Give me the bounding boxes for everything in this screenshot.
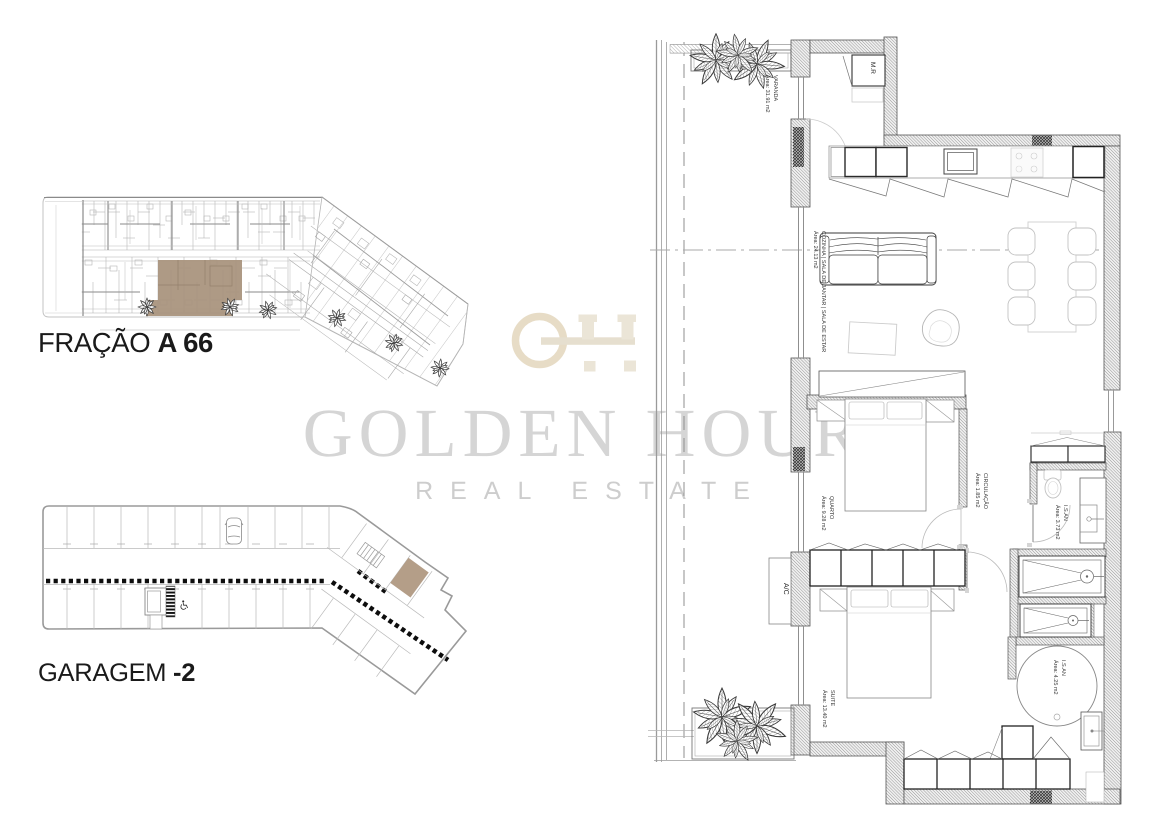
svg-text:GARAGEM -2: GARAGEM -2	[38, 659, 195, 687]
svg-text:FRAÇÃO A 66: FRAÇÃO A 66	[38, 327, 213, 358]
svg-text:SUITEÁrea: 13.40 m2: SUITEÁrea: 13.40 m2	[821, 690, 835, 728]
svg-text:GOLDEN HOUR: GOLDEN HOUR	[303, 395, 865, 471]
svg-text:A/C: A/C	[782, 583, 790, 595]
svg-text:COZINHA | SALA DE JANTAR | SAL: COZINHA | SALA DE JANTAR | SALA DE ESTAR…	[812, 231, 826, 352]
svg-text:M.R: M.R	[869, 62, 876, 74]
svg-text:REAL ESTATE: REAL ESTATE	[415, 477, 767, 505]
svg-text:QUARTOÁrea: 9.28 m2: QUARTOÁrea: 9.28 m2	[820, 496, 834, 531]
svg-text:CIRCULAÇÃOÁrea: 1.85 m2: CIRCULAÇÃOÁrea: 1.85 m2	[974, 473, 989, 510]
svg-text:VARANDAÁrea: 31.91 m2: VARANDAÁrea: 31.91 m2	[764, 75, 778, 113]
